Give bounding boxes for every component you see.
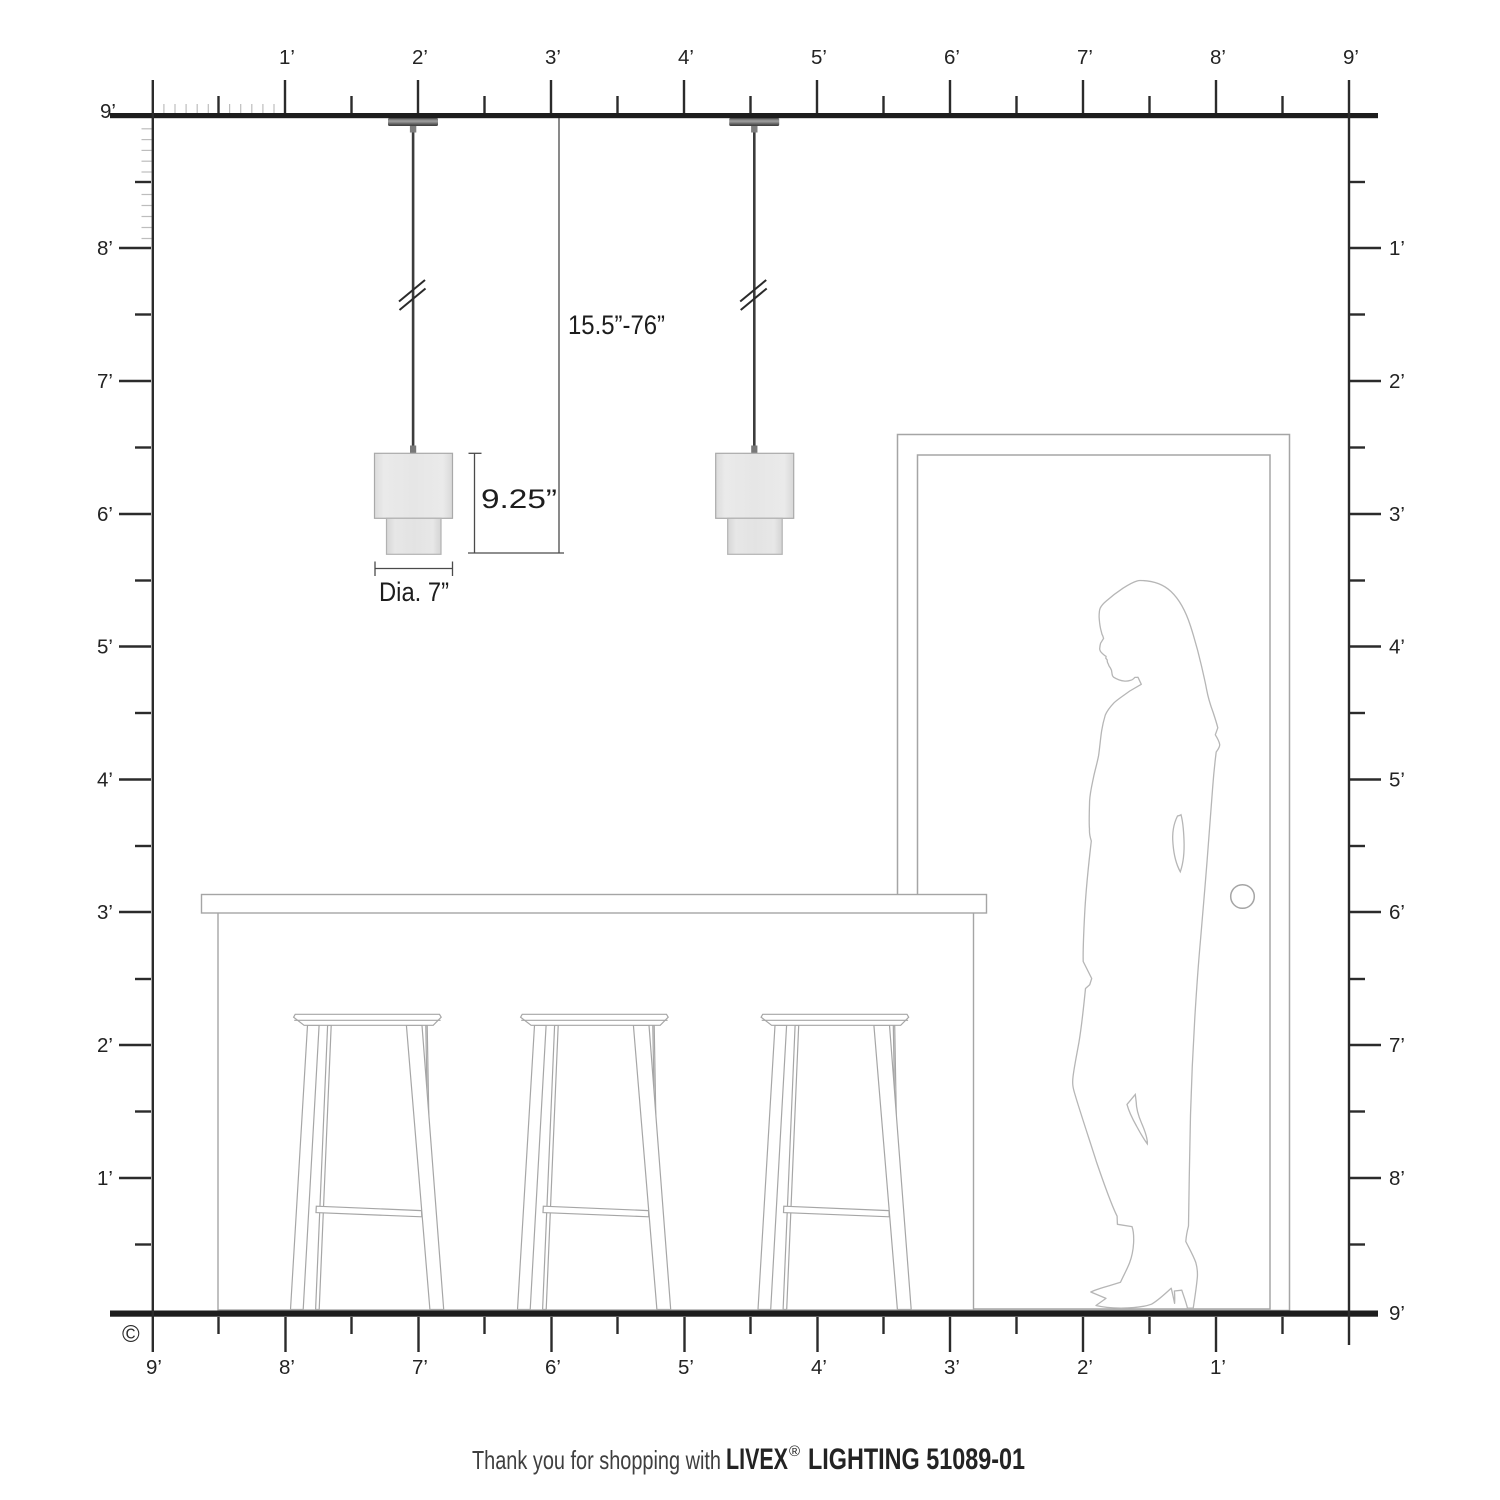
svg-text:3’: 3’	[545, 46, 561, 69]
svg-text:2’: 2’	[1077, 1356, 1093, 1379]
svg-text:Dia. 7”: Dia. 7”	[379, 577, 449, 607]
svg-text:5’: 5’	[1389, 769, 1405, 792]
svg-text:3’: 3’	[944, 1356, 960, 1379]
svg-text:8’: 8’	[279, 1356, 295, 1379]
svg-text:5’: 5’	[811, 46, 827, 69]
svg-text:15.5”-76”: 15.5”-76”	[568, 310, 665, 340]
svg-text:1’: 1’	[97, 1167, 113, 1190]
svg-text:9’: 9’	[146, 1356, 162, 1379]
svg-text:3’: 3’	[1389, 503, 1405, 526]
svg-text:6’: 6’	[545, 1356, 561, 1379]
svg-text:7’: 7’	[97, 370, 113, 393]
svg-text:®: ®	[789, 1443, 800, 1460]
svg-text:4’: 4’	[678, 46, 694, 69]
svg-text:8’: 8’	[97, 237, 113, 260]
svg-text:2’: 2’	[412, 46, 428, 69]
svg-text:3’: 3’	[97, 901, 113, 924]
svg-text:9.25”: 9.25”	[481, 484, 557, 514]
svg-text:2’: 2’	[1389, 370, 1405, 393]
svg-text:Thank you for shopping with: Thank you for shopping with	[472, 1445, 721, 1475]
svg-text:9’: 9’	[1343, 46, 1359, 69]
svg-text:7’: 7’	[412, 1356, 428, 1379]
svg-text:4’: 4’	[811, 1356, 827, 1379]
svg-text:4’: 4’	[1389, 636, 1405, 659]
svg-text:8’: 8’	[1389, 1167, 1405, 1190]
svg-text:6’: 6’	[97, 503, 113, 526]
svg-text:LIVEX: LIVEX	[726, 1443, 788, 1476]
svg-text:©: ©	[122, 1321, 140, 1348]
svg-text:6’: 6’	[944, 46, 960, 69]
svg-text:1’: 1’	[279, 46, 295, 69]
svg-text:7’: 7’	[1389, 1034, 1405, 1057]
svg-text:5’: 5’	[97, 636, 113, 659]
svg-text:7’: 7’	[1077, 46, 1093, 69]
svg-text:6’: 6’	[1389, 901, 1405, 924]
svg-text:9’: 9’	[100, 100, 116, 123]
svg-text:1’: 1’	[1210, 1356, 1226, 1379]
svg-text:5’: 5’	[678, 1356, 694, 1379]
svg-text:1’: 1’	[1389, 237, 1405, 260]
svg-text:4’: 4’	[97, 769, 113, 792]
svg-text:9’: 9’	[1389, 1302, 1405, 1325]
svg-text:8’: 8’	[1210, 46, 1226, 69]
svg-text:LIGHTING 51089-01: LIGHTING 51089-01	[808, 1443, 1025, 1476]
svg-text:2’: 2’	[97, 1034, 113, 1057]
